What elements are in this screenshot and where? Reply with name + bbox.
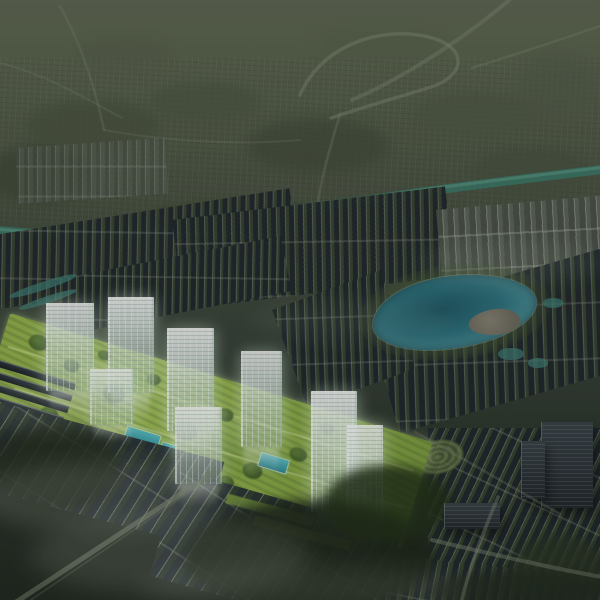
foreground-road xyxy=(415,432,560,514)
aerial-city-render xyxy=(0,0,600,600)
fog-wisp xyxy=(250,300,450,340)
foreground-road xyxy=(432,540,600,578)
fog-wisp xyxy=(420,240,600,285)
